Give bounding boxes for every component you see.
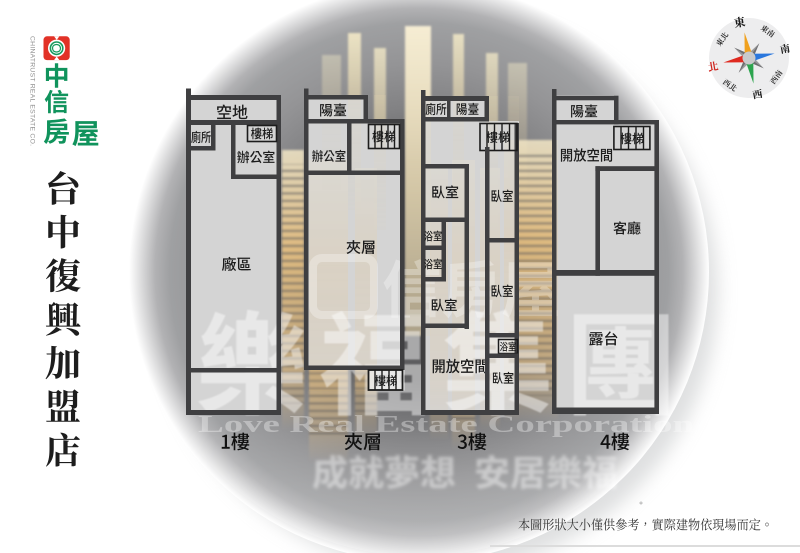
svg-text:CHINATRUST REAL ESTATE CO.: CHINATRUST REAL ESTATE CO. <box>29 36 36 146</box>
